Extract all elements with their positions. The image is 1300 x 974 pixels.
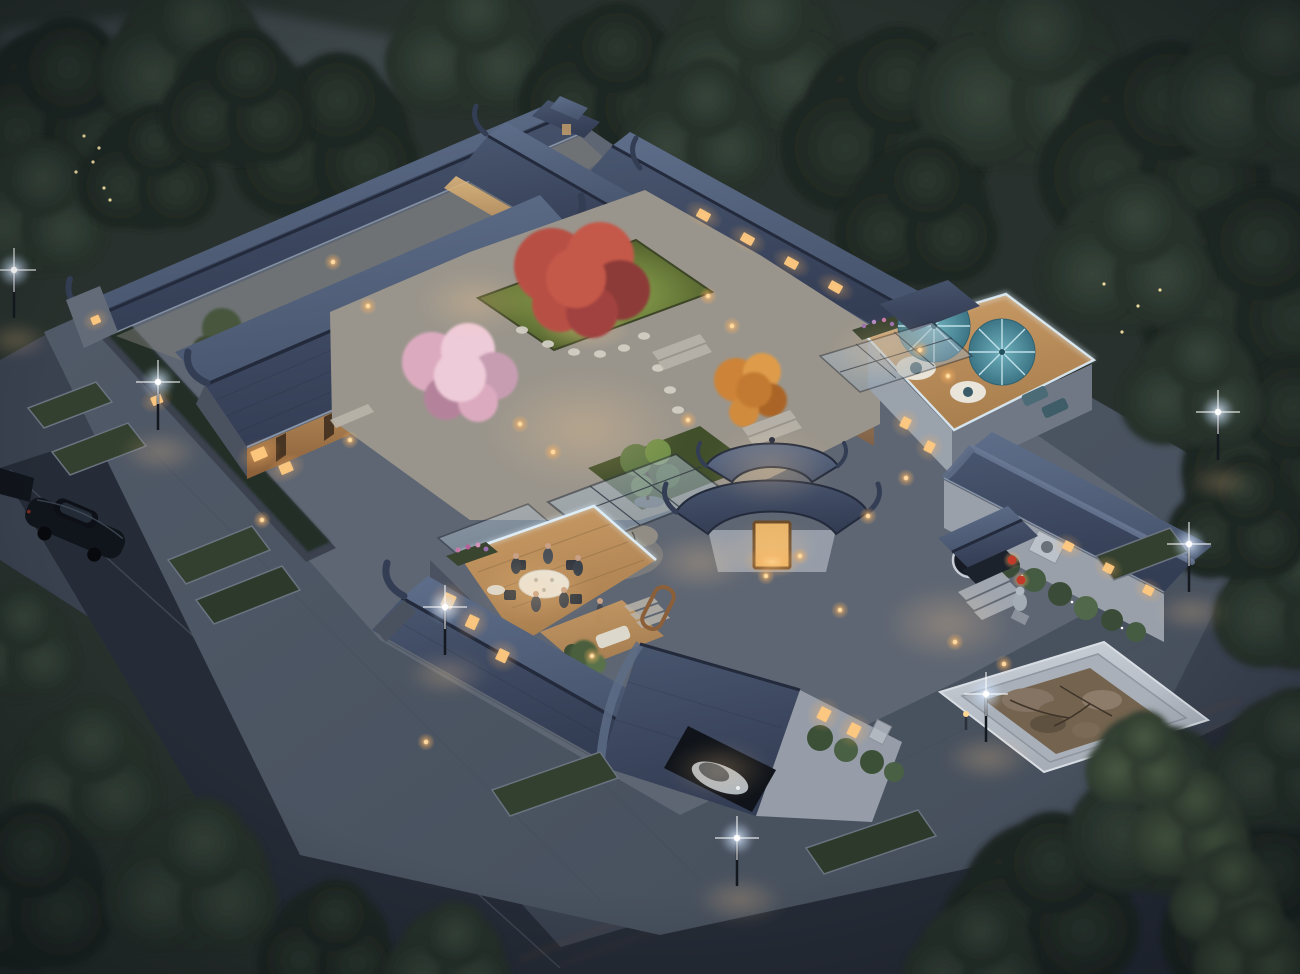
vignette — [0, 0, 1300, 974]
scene-canvas — [0, 0, 1300, 974]
rendering-stage — [0, 0, 1300, 974]
